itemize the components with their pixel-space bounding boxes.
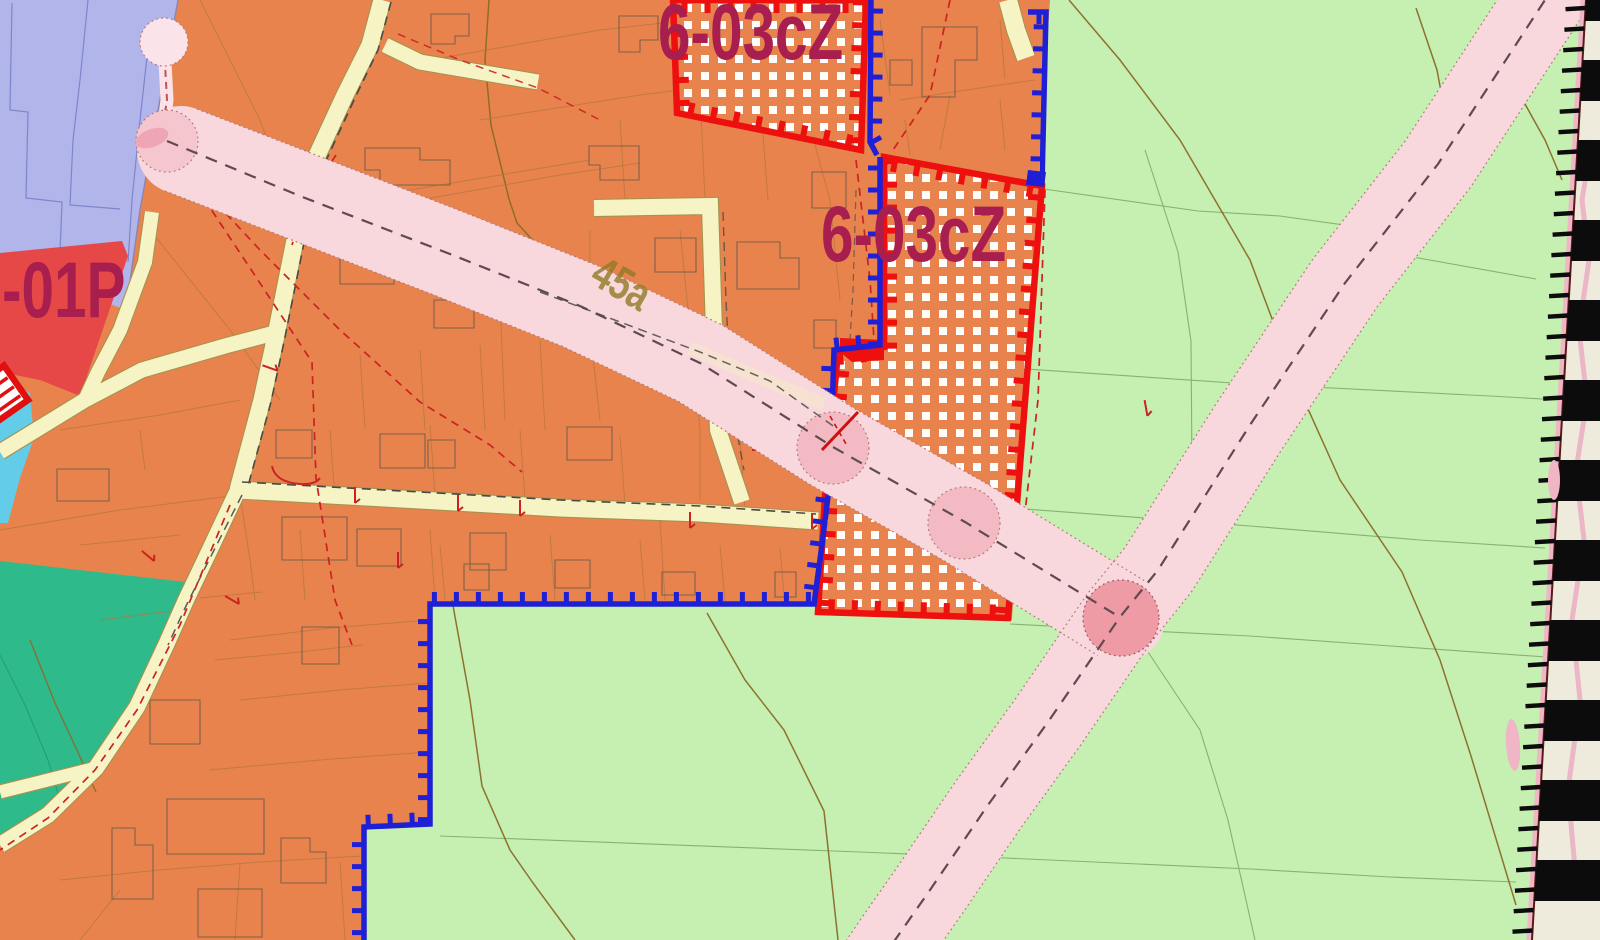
svg-text:-01P: -01P: [2, 245, 125, 334]
svg-text:6-03cZ: 6-03cZ: [821, 189, 1006, 278]
svg-text:6-03cZ: 6-03cZ: [658, 0, 843, 76]
